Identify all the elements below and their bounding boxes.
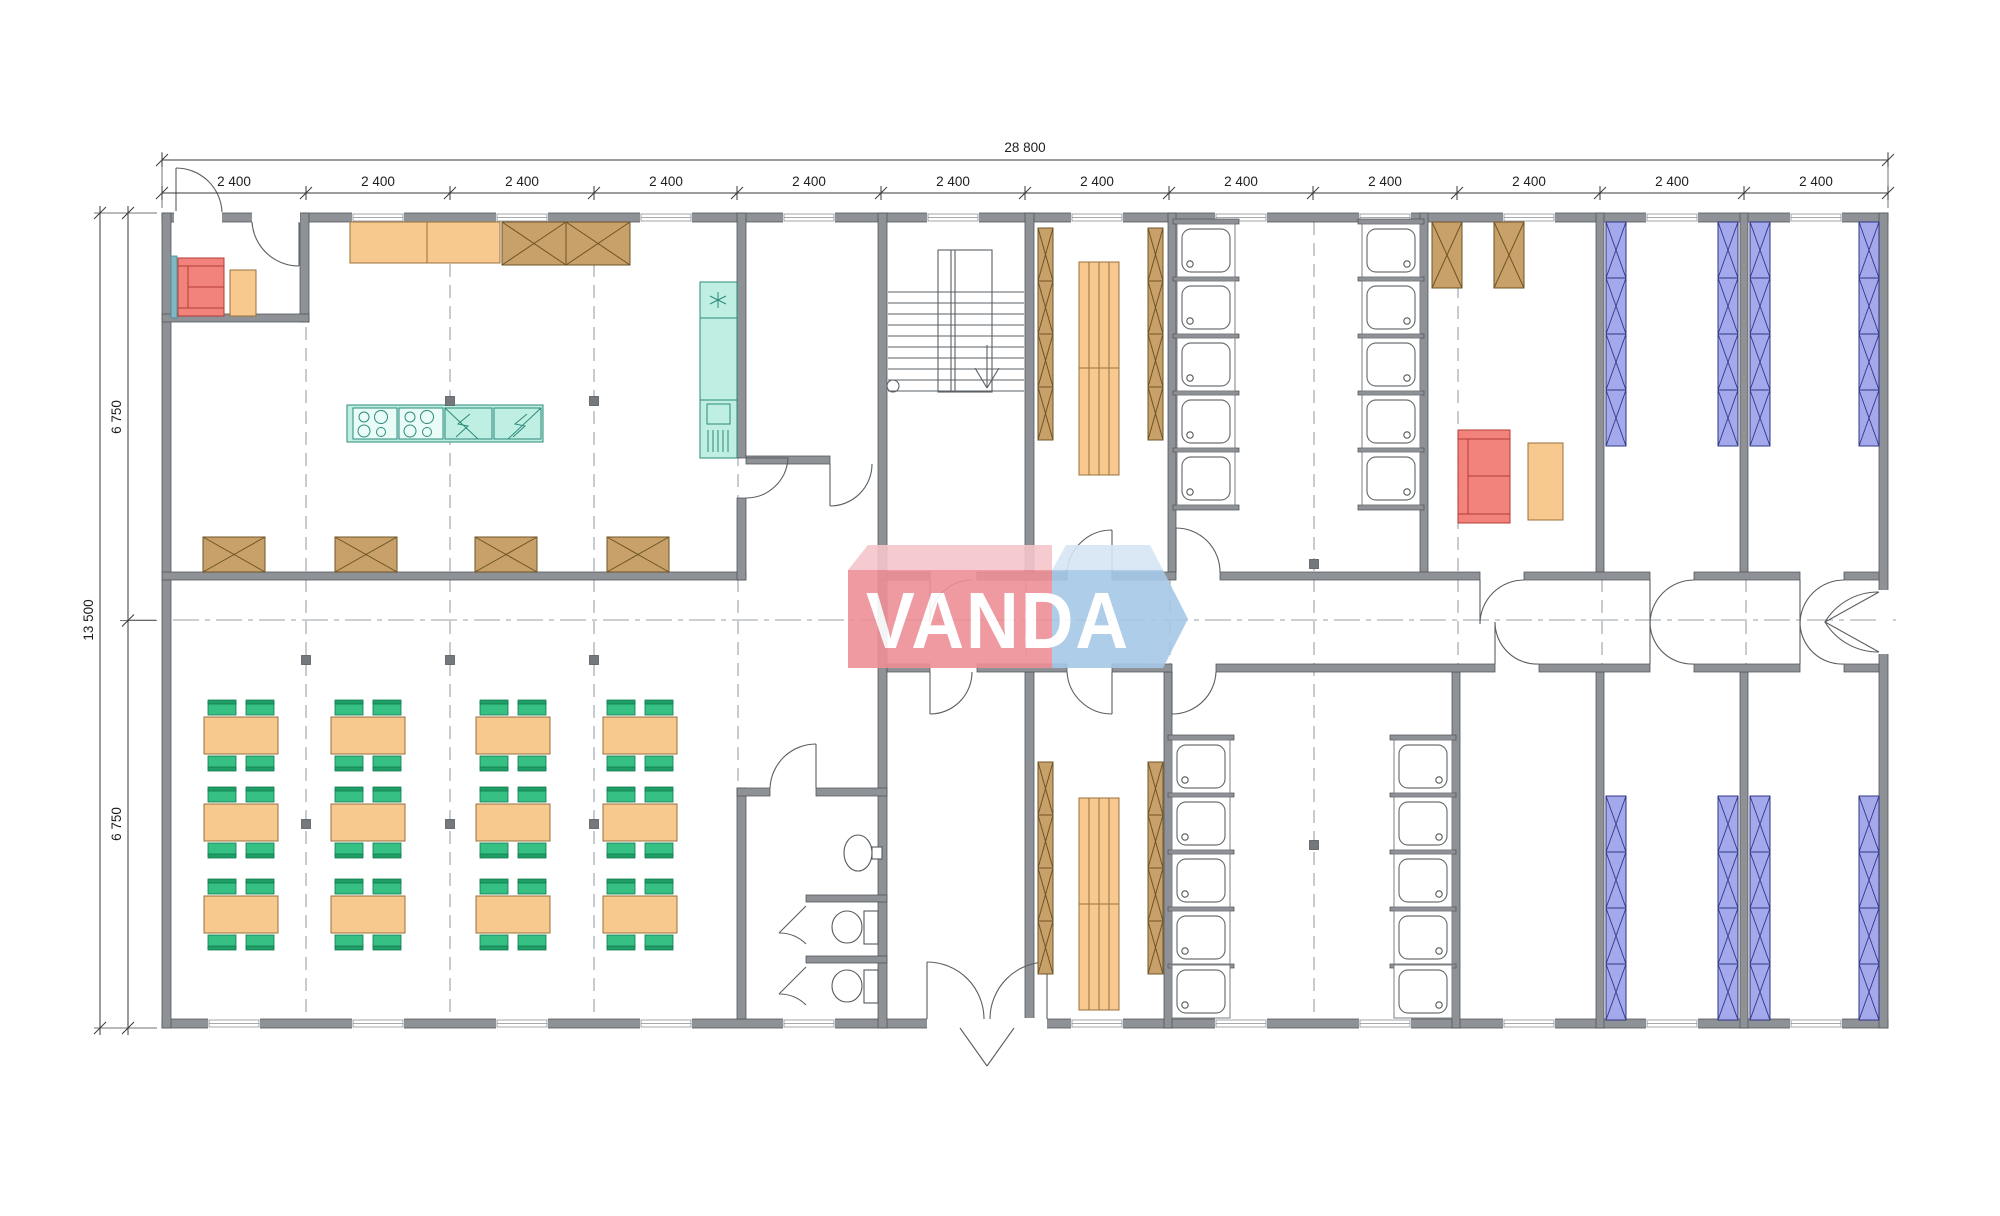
- sofa: [1458, 430, 1510, 523]
- room-wall-right-bottom: [1596, 672, 1604, 1028]
- dining-table-set: [331, 700, 405, 771]
- bench-section: [1148, 334, 1163, 387]
- wall-cabinet: [350, 222, 427, 263]
- floor-plan-svg: 28 800 2 400 2 400 2 400 2 400 2 400 2 4…: [0, 0, 2000, 1216]
- window: [1359, 1018, 1411, 1029]
- dimension-label-total-width: 28 800: [1004, 140, 1045, 155]
- wardrobe-box: [502, 222, 566, 265]
- dimension-label-module: 2 400: [1368, 174, 1402, 189]
- lounge-wall-right-top: [1596, 213, 1604, 572]
- kitchen-hall-wall-lower: [737, 498, 746, 580]
- dining-table-set: [476, 787, 550, 858]
- bunk-bed: [1750, 222, 1770, 446]
- dorm-wall-bottom: [1740, 672, 1748, 1028]
- stair-start-marker: [887, 380, 899, 392]
- bunk-bed: [1859, 222, 1879, 446]
- shower-stall: [1394, 911, 1452, 964]
- dimension-top-chain: 2 400 2 400 2 400 2 400 2 400 2 400 2 40…: [156, 174, 1894, 200]
- dining-table-set: [476, 879, 550, 950]
- bunk-bed: [1606, 222, 1626, 446]
- dimension-label-module: 2 400: [792, 174, 826, 189]
- dimension-left-total: 13 500: [81, 206, 106, 1035]
- window: [783, 212, 835, 223]
- stair-wall-right: [1025, 213, 1034, 580]
- dining-table-set: [204, 879, 278, 950]
- office-door: [252, 222, 299, 266]
- shower-stall: [1362, 395, 1420, 448]
- window: [352, 1018, 404, 1029]
- window: [1646, 1018, 1698, 1029]
- hall-partition-door: [830, 464, 872, 506]
- wall-cabinet: [427, 222, 500, 263]
- dimension-label-module: 2 400: [217, 174, 251, 189]
- bench-section: [1148, 281, 1163, 334]
- window: [783, 1018, 835, 1029]
- window: [496, 212, 548, 223]
- dining-table-set: [331, 787, 405, 858]
- bench-box: [607, 537, 669, 572]
- lounge-room: [1432, 222, 1563, 523]
- logo-blue-top-face: [1052, 545, 1163, 570]
- bunk-bed: [1606, 796, 1626, 1020]
- dimension-label-module: 2 400: [1655, 174, 1689, 189]
- dining-table-set: [204, 700, 278, 771]
- wc-area: [832, 835, 882, 1003]
- staircase: [887, 250, 1024, 392]
- shower-stall: [1177, 224, 1235, 277]
- wc-lobby-door: [770, 744, 816, 788]
- bench-section: [1038, 228, 1053, 281]
- dimension-label-module: 2 400: [1224, 174, 1258, 189]
- window: [640, 212, 692, 223]
- bunk-bed: [1750, 796, 1770, 1020]
- wc-stall-wall-2: [806, 956, 887, 963]
- dimension-label-half-height: 6 750: [109, 807, 124, 841]
- wash-basin: [844, 835, 882, 871]
- window: [640, 1018, 692, 1029]
- shower-stall: [1394, 797, 1452, 850]
- window: [1503, 1018, 1555, 1029]
- corridor-door-lounge: [1480, 580, 1524, 624]
- bench-box: [475, 537, 537, 572]
- dimension-label-module: 2 400: [649, 174, 683, 189]
- shower-stall: [1362, 224, 1420, 277]
- window: [208, 1018, 260, 1029]
- kitchen-island: [347, 405, 543, 442]
- dorm-wall-top: [1740, 213, 1748, 572]
- window: [1071, 212, 1123, 223]
- wardrobe-box: [1432, 222, 1462, 288]
- dining-table-set: [603, 700, 677, 771]
- dining-table-set: [476, 700, 550, 771]
- dimension-label-module: 2 400: [1512, 174, 1546, 189]
- wc-stall-door: [779, 906, 806, 944]
- dining-table-set: [204, 787, 278, 858]
- wc-toilet: [832, 970, 878, 1003]
- entry-hall-wall-right: [1025, 672, 1034, 1028]
- side-table: [1528, 443, 1563, 520]
- sauna-bench: [1079, 262, 1119, 475]
- bunk-bed: [1718, 796, 1738, 1020]
- stair-direction-arrow: [975, 345, 999, 388]
- corridor-door-entry-hall: [930, 672, 972, 714]
- bench-box: [203, 537, 265, 572]
- window: [1790, 1018, 1842, 1029]
- floor-plan-page: 28 800 2 400 2 400 2 400 2 400 2 400 2 4…: [0, 0, 2000, 1216]
- fridge-unit: [700, 282, 737, 458]
- side-table: [230, 270, 256, 316]
- bench-section: [1038, 281, 1053, 334]
- window: [496, 1018, 548, 1029]
- window: [1503, 212, 1555, 223]
- dining-hall: [204, 700, 677, 950]
- vanda-watermark: VANDA: [848, 545, 1188, 668]
- corridor-door-dorm-b: [1800, 580, 1844, 624]
- wardrobe-box: [1494, 222, 1524, 288]
- shower-stall: [1362, 452, 1420, 505]
- wc-stall-wall-1: [806, 895, 887, 902]
- shower-stall: [1172, 911, 1230, 964]
- window: [1646, 212, 1698, 223]
- shower-stall: [1394, 854, 1452, 907]
- sofa: [178, 258, 224, 316]
- office-room: [171, 256, 256, 318]
- window: [1071, 1018, 1123, 1029]
- bench-section: [1148, 387, 1163, 440]
- exterior-door-office: [176, 168, 222, 212]
- exterior-door-east: [1825, 592, 1879, 652]
- logo-text: VANDA: [866, 576, 1130, 665]
- dimension-top-total: 28 800: [156, 140, 1894, 167]
- shower-stall: [1172, 854, 1230, 907]
- stair-treads: [888, 292, 1024, 391]
- sauna-room-top: [1038, 228, 1163, 475]
- shower-stall: [1172, 740, 1230, 793]
- corridor-door-washroom2: [1172, 672, 1216, 714]
- wc-stall-door: [779, 967, 806, 1005]
- stair-flight-outline: [938, 250, 992, 392]
- office-wall-right: [300, 213, 309, 322]
- kitchen-hall-wall-upper: [737, 213, 746, 458]
- shower-stall: [1362, 281, 1420, 334]
- exterior-wall-left: [162, 213, 171, 1028]
- corridor-door-room: [1495, 622, 1539, 664]
- shower-stall: [1362, 338, 1420, 391]
- wc-wall-left: [737, 788, 746, 1019]
- sauna-room-bottom: [1038, 762, 1163, 1010]
- corridor-door-dorm-c: [1650, 622, 1694, 664]
- window: [352, 212, 404, 223]
- shower-stall: [1394, 740, 1452, 793]
- window: [1790, 212, 1842, 223]
- bunk-bed: [1718, 222, 1738, 446]
- washroom-bottom: [1168, 735, 1456, 1018]
- wc-lobby-wall: [737, 788, 887, 796]
- dimension-label-half-height: 6 750: [109, 400, 124, 434]
- wc-toilet: [832, 911, 878, 944]
- shower-stall: [1394, 965, 1452, 1018]
- dining-table-set: [603, 787, 677, 858]
- bench-section: [1038, 334, 1053, 387]
- shower-stall: [1177, 281, 1235, 334]
- shower-stall: [1177, 452, 1235, 505]
- dimension-label-module: 2 400: [1080, 174, 1114, 189]
- dimension-label-module: 2 400: [361, 174, 395, 189]
- washroom-top: [1173, 219, 1424, 510]
- dimension-label-module: 2 400: [505, 174, 539, 189]
- bunk-bed: [1859, 796, 1879, 1020]
- dining-table-set: [603, 879, 677, 950]
- wall-finish-strip: [171, 256, 177, 318]
- window: [927, 212, 979, 223]
- shower-stall: [1172, 797, 1230, 850]
- corridor-door-washroom: [1176, 528, 1220, 572]
- dimension-label-total-height: 13 500: [81, 599, 96, 640]
- corridor-door-sauna2: [1067, 672, 1112, 714]
- bench-section: [1038, 387, 1053, 440]
- sauna-bench: [1079, 798, 1119, 1010]
- shower-stall: [1172, 965, 1230, 1018]
- stair-wall-left: [878, 213, 887, 580]
- stove: [399, 408, 443, 439]
- dimension-label-module: 2 400: [1799, 174, 1833, 189]
- dimension-label-module: 2 400: [936, 174, 970, 189]
- shower-stall: [1177, 395, 1235, 448]
- stove: [353, 408, 397, 439]
- wardrobe-box: [566, 222, 630, 265]
- bench-section: [1148, 228, 1163, 281]
- window: [1215, 1018, 1267, 1029]
- dining-table-set: [331, 879, 405, 950]
- logo-red-top-face: [848, 545, 1052, 570]
- kitchen-dining-wall: [162, 572, 746, 580]
- shower-stall: [1177, 338, 1235, 391]
- kitchen: [203, 222, 737, 572]
- bench-box: [335, 537, 397, 572]
- corridor-door-dorm-a: [1650, 580, 1694, 624]
